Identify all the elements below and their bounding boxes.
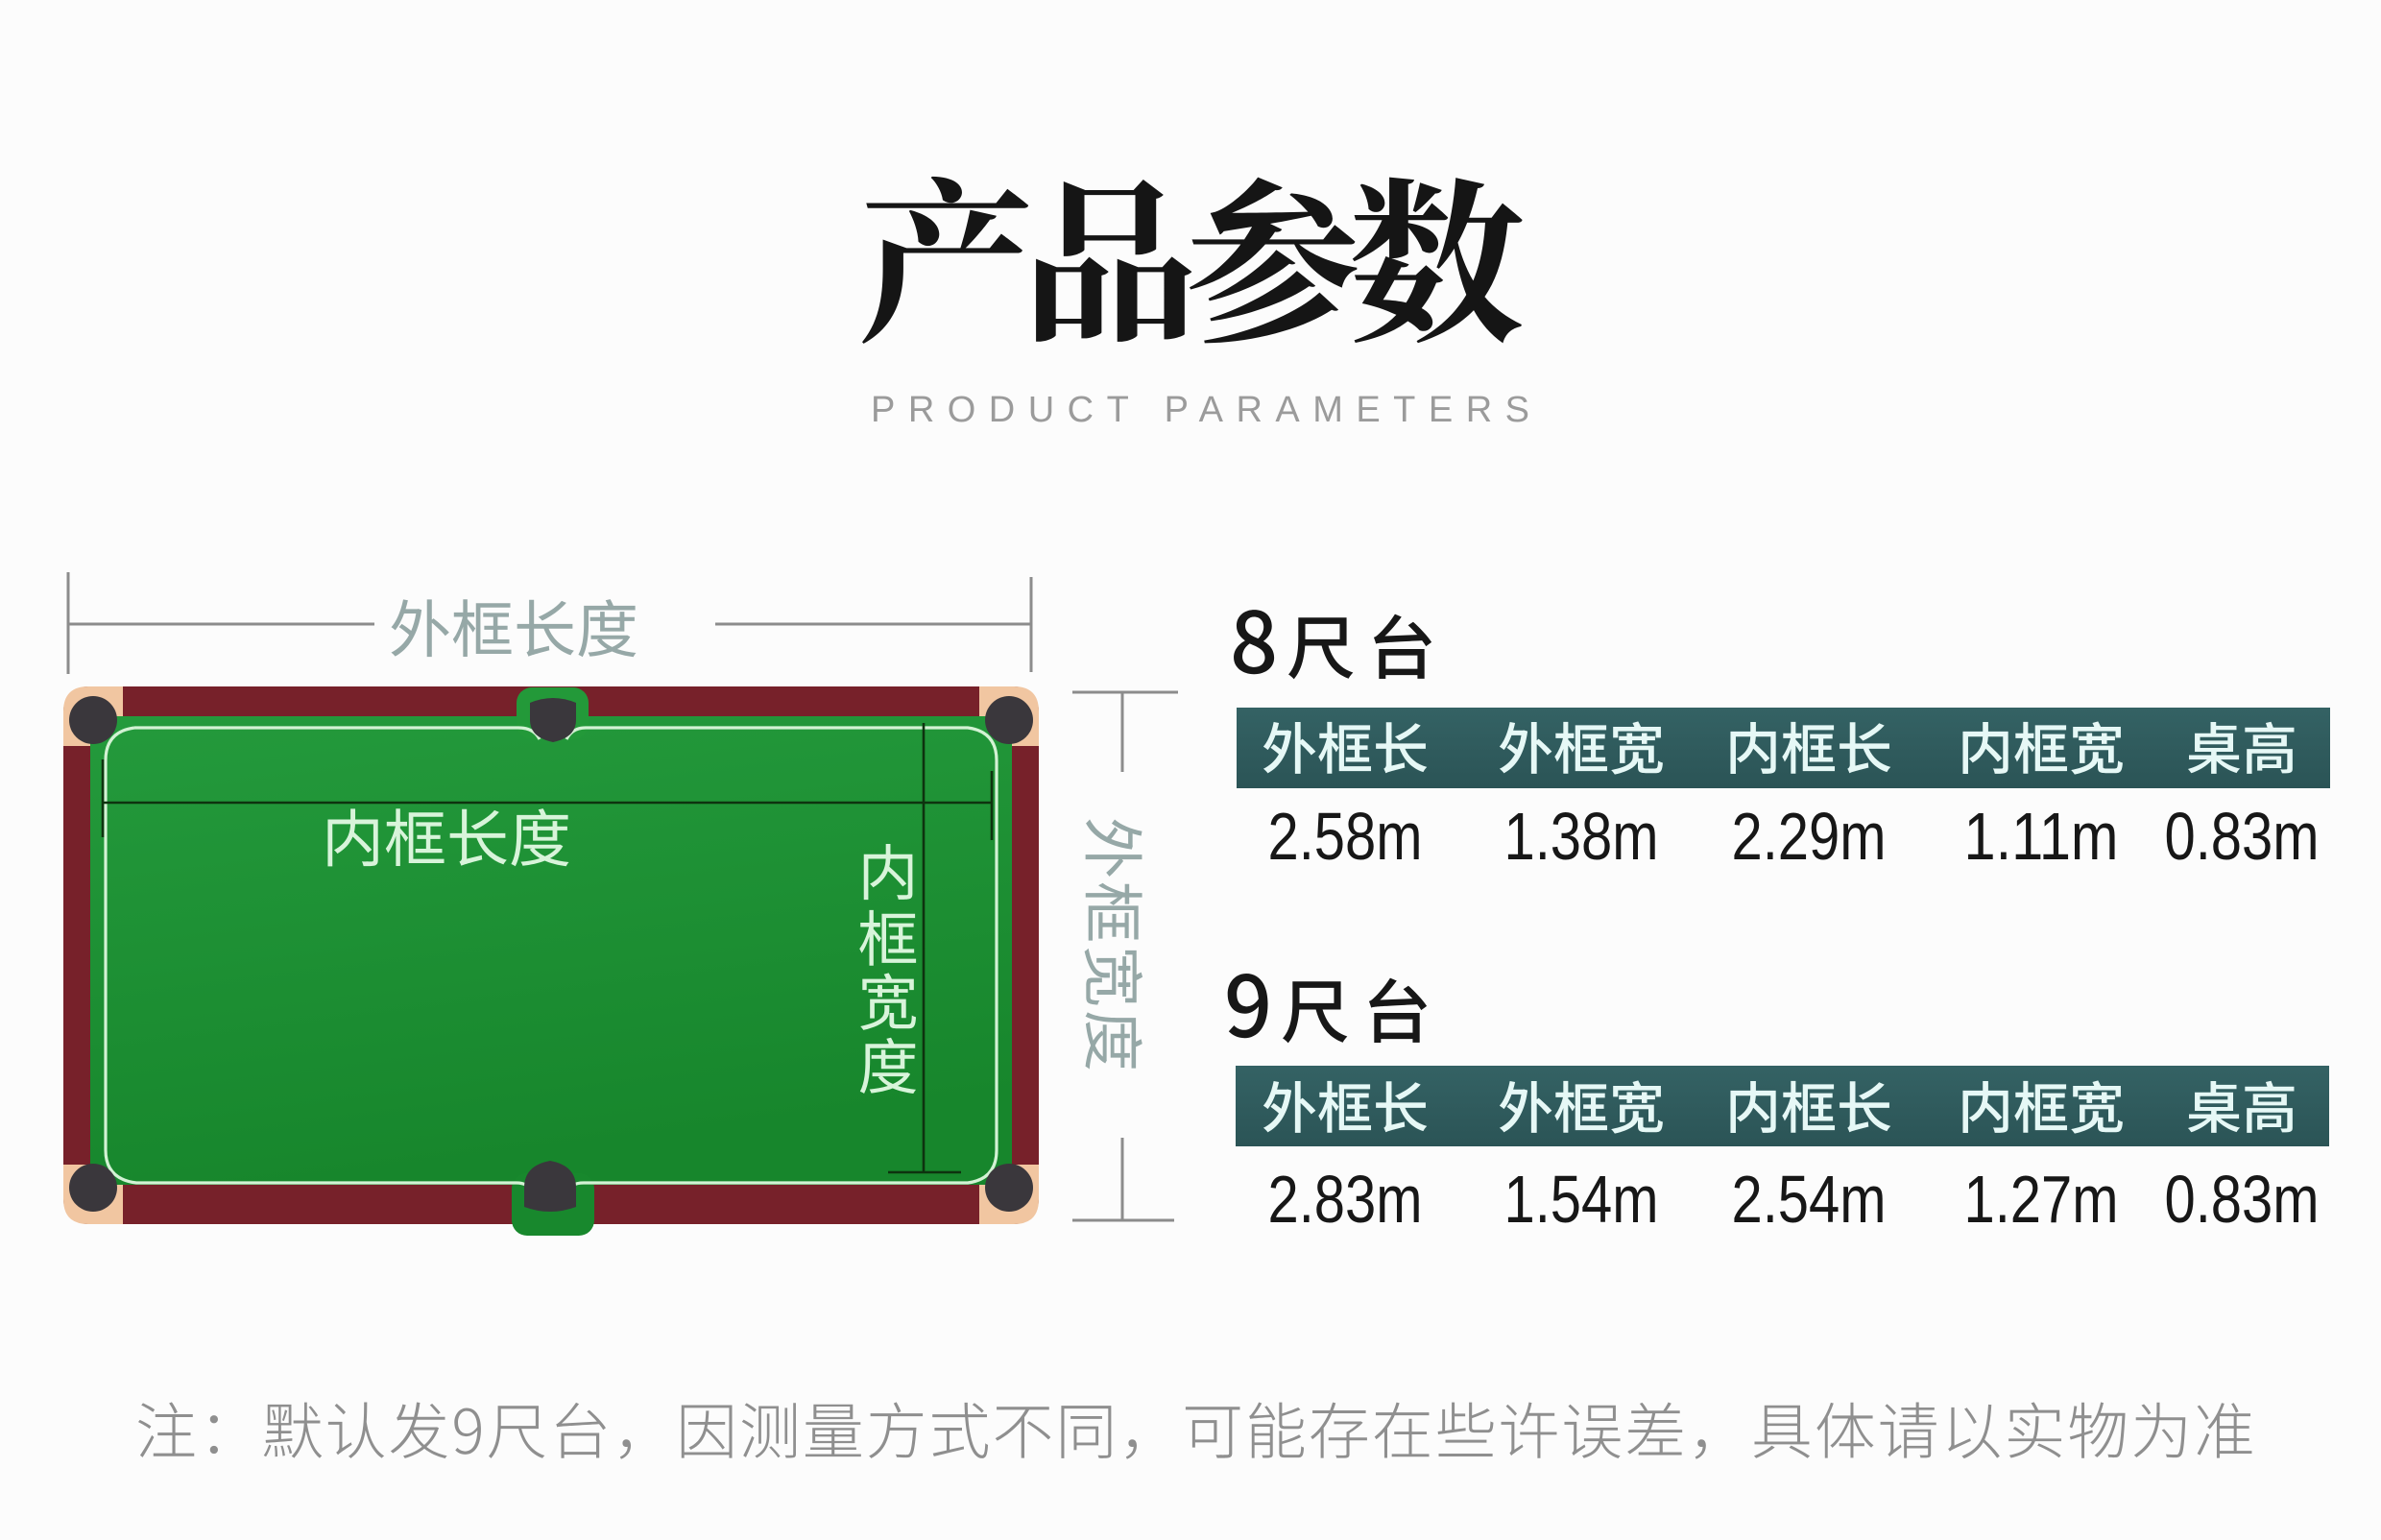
svg-text:PRODUCT PARAMETERS: PRODUCT PARAMETERS [871, 390, 1529, 430]
svg-text:2.58m: 2.58m [1268, 799, 1423, 874]
svg-text:1.38m: 1.38m [1504, 799, 1659, 874]
svg-text:0.83m: 0.83m [2165, 799, 2320, 874]
svg-text:0.83m: 0.83m [2165, 1162, 2320, 1237]
svg-text:2.54m: 2.54m [1732, 1162, 1887, 1237]
svg-text:2.29m: 2.29m [1732, 799, 1887, 874]
svg-text:1.27m: 1.27m [1964, 1162, 2119, 1237]
svg-text:2.83m: 2.83m [1268, 1162, 1423, 1237]
svg-text:1.54m: 1.54m [1504, 1162, 1659, 1237]
svg-text:1.11m: 1.11m [1964, 799, 2119, 874]
